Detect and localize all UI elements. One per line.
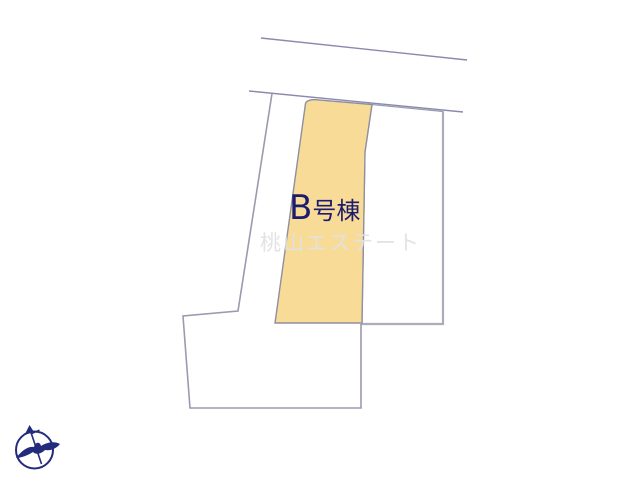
- parcel-b-label: B号棟: [289, 191, 360, 225]
- watermark-text: 桃山エステート: [260, 227, 421, 257]
- parcel-b-label-suffix: 号棟: [312, 197, 360, 225]
- road-upper-edge-line: [261, 38, 467, 60]
- parcel-b-label-letter: B: [289, 188, 312, 228]
- compass-north-icon: [16, 425, 60, 469]
- plot-map-canvas: 桃山エステート B号棟: [0, 0, 640, 480]
- parcel-right: [362, 105, 443, 325]
